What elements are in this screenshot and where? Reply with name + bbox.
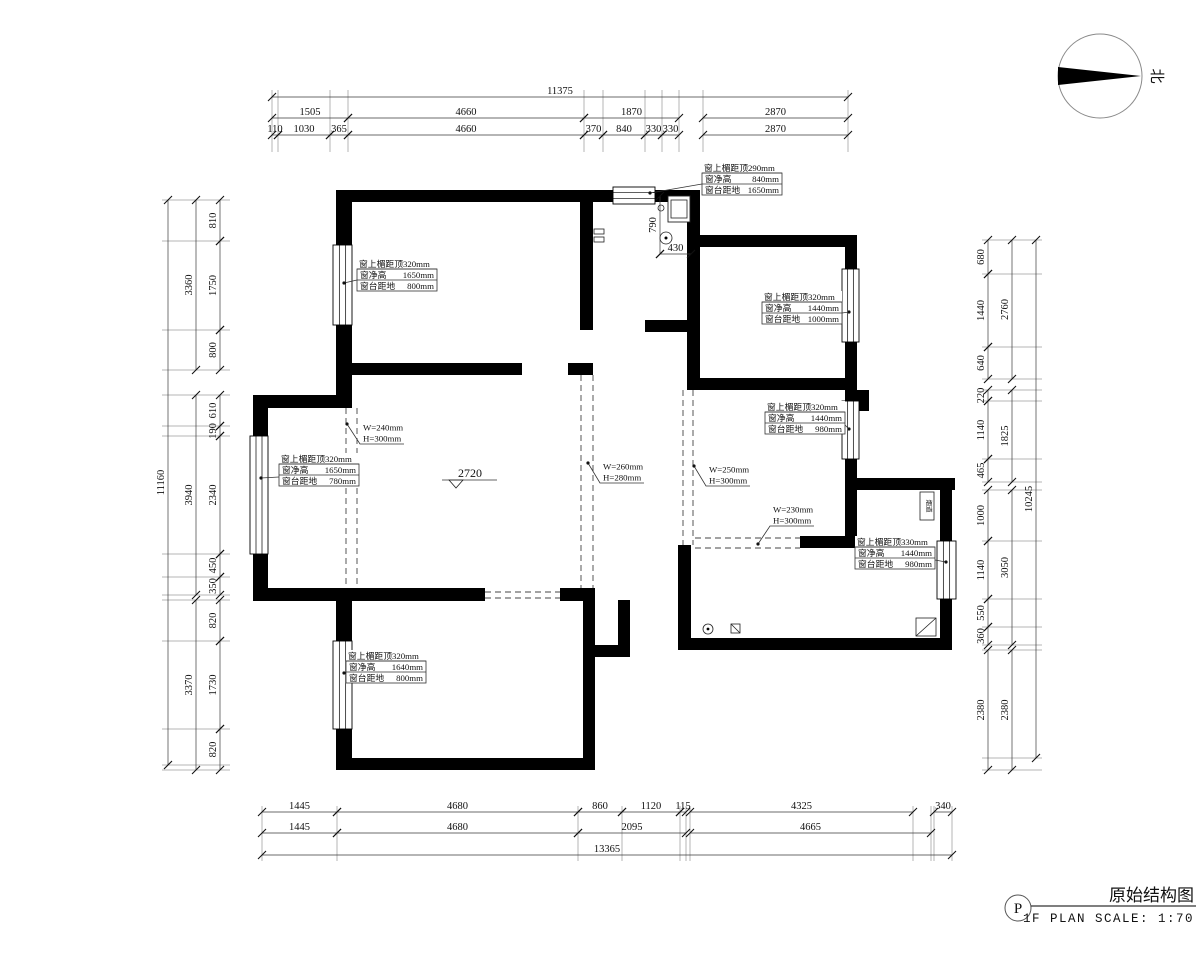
tag-line2-label: 窗净高 (765, 302, 792, 313)
tag-line2-label: 窗净高 (705, 173, 732, 184)
tag-line2-value: 1640mm (392, 662, 423, 672)
tag-line1: 窗上楣距顶320mm (764, 291, 835, 302)
dim-label: 2340 (208, 485, 219, 506)
tag-line3-label: 窗台距地 (705, 184, 740, 195)
dim-label: 190 (208, 423, 219, 439)
tag-leader-dot (847, 427, 850, 430)
dim-label: 4680 (447, 822, 468, 833)
dim-label: 10245 (1024, 486, 1035, 512)
tag-line2-value: 1650mm (325, 465, 356, 475)
dim-label: 2095 (622, 822, 643, 833)
dim-label: 430 (668, 243, 684, 254)
dim-label: 1440 (976, 300, 987, 321)
tag-line2-value: 1650mm (403, 270, 434, 280)
tag-line2-label: 窗净高 (349, 661, 376, 672)
beam-height: H=300mm (709, 476, 747, 486)
dim-label: 4660 (456, 107, 477, 118)
dim-label: 350 (208, 578, 219, 594)
dim-label: 820 (208, 742, 219, 758)
flue-label: 烟道 (925, 500, 934, 514)
dim-label: 4325 (791, 801, 812, 812)
tag-line1: 窗上楣距顶330mm (857, 536, 928, 547)
tag-line2-label: 窗净高 (858, 547, 885, 558)
dim-label: 4660 (456, 124, 477, 135)
tag-leader-dot (944, 560, 947, 563)
dim-label: 1120 (641, 801, 662, 812)
tag-line3-value: 1000mm (808, 314, 839, 324)
tag-line2-label: 窗净高 (282, 464, 309, 475)
dim-label: 610 (208, 403, 219, 419)
tag-line3-value: 780mm (329, 476, 356, 486)
window-tag: 窗上楣距顶290mm窗净高840mm窗台距地1650mm (648, 162, 782, 195)
dim-label: 360 (976, 628, 987, 644)
dim-label: 115 (675, 801, 690, 812)
dim-label: 365 (331, 124, 347, 135)
tag-line1: 窗上楣距顶320mm (359, 258, 430, 269)
tag-line1: 窗上楣距顶320mm (281, 453, 352, 464)
north-label: 北 (1148, 68, 1165, 83)
beam-tag: W=260mmH=280mm (586, 461, 644, 483)
dim-label: 680 (976, 249, 987, 265)
tag-line2-value: 840mm (752, 174, 779, 184)
tag-line3-value: 980mm (815, 424, 842, 434)
dim-label: 800 (208, 342, 219, 358)
tag-line3-value: 800mm (407, 281, 434, 291)
dim-label: 820 (208, 613, 219, 629)
tag-line3-label: 窗台距地 (858, 558, 893, 569)
ceiling-height-mark: 2720 (442, 466, 497, 488)
tag-line1: 窗上楣距顶320mm (348, 650, 419, 661)
dim-label: 370 (586, 124, 602, 135)
dim-label: 13365 (594, 844, 620, 855)
beam-tag: W=240mmH=300mm (345, 422, 404, 444)
tag-leader-dot (847, 310, 850, 313)
plan-scale-label: 1F PLAN SCALE: 1:70 (1023, 912, 1194, 926)
beam-leader-dot (586, 461, 589, 464)
north-arrow: 北 (1058, 34, 1165, 118)
tag-leader-dot (648, 191, 651, 194)
dim-label: 465 (976, 463, 987, 479)
faucet (658, 205, 664, 211)
dim-label: 3370 (184, 675, 195, 696)
dim-label: 1445 (289, 801, 310, 812)
beam-leader-dot (756, 542, 759, 545)
tag-line3-label: 窗台距地 (768, 423, 803, 434)
dim-label: 330 (646, 124, 662, 135)
tag-line2-label: 窗净高 (768, 412, 795, 423)
beam-leader-dot (692, 464, 695, 467)
dim-label: 11375 (547, 86, 573, 97)
tag-line3-value: 1650mm (748, 185, 779, 195)
dim-label: 1505 (300, 107, 321, 118)
dim-label: 340 (935, 801, 951, 812)
dim-label: 3050 (1000, 557, 1011, 578)
dim-label: 2380 (1000, 700, 1011, 721)
dim-label: 4680 (447, 801, 468, 812)
tag-line1: 窗上楣距顶320mm (767, 401, 838, 412)
tag-line3-label: 窗台距地 (765, 313, 800, 324)
beam-height: H=300mm (773, 516, 811, 526)
dim-label: 840 (616, 124, 632, 135)
dim-label: 3360 (184, 275, 195, 296)
dim-label: 2870 (765, 124, 786, 135)
beam-width: W=260mm (603, 462, 643, 472)
floor-plan-page: 烟道 2720 北 P 原始结构图 1F PLAN SCALE: 1:70 11… (0, 0, 1200, 960)
riser (594, 237, 604, 242)
tag-line3-label: 窗台距地 (360, 280, 395, 291)
dim-label: 1750 (208, 275, 219, 296)
dim-label: 790 (648, 217, 659, 233)
dim-label: 1140 (976, 560, 987, 581)
ceiling-height-value: 2720 (458, 466, 482, 480)
tag-line2-value: 1440mm (808, 303, 839, 313)
dim-label: 1870 (621, 107, 642, 118)
beam-width: W=240mm (363, 423, 403, 433)
window-tag: 窗上楣距顶320mm窗净高1650mm窗台距地780mm (259, 453, 359, 486)
floor-drain-dot (707, 628, 710, 631)
dim-label: 220 (976, 388, 987, 404)
plan-badge-letter: P (1014, 901, 1022, 917)
dim-label: 3940 (184, 485, 195, 506)
tag-line3-label: 窗台距地 (282, 475, 317, 486)
window-tag: 窗上楣距顶330mm窗净高1440mm窗台距地980mm (855, 536, 948, 569)
beam-tags: W=240mmH=300mmW=260mmH=280mmW=250mmH=300… (345, 422, 814, 545)
window-tag: 窗上楣距顶320mm窗净高1640mm窗台距地800mm (342, 650, 426, 683)
dim-label: 1730 (208, 675, 219, 696)
title-block: P 原始结构图 1F PLAN SCALE: 1:70 (1005, 886, 1196, 926)
toilet-drain-dot (665, 237, 668, 240)
north-needle (1058, 67, 1141, 85)
beam-width: W=230mm (773, 505, 813, 515)
dim-label: 860 (592, 801, 608, 812)
drawing-title: 原始结构图 (1109, 886, 1194, 905)
dim-label: 640 (976, 355, 987, 371)
riser (594, 229, 604, 234)
dim-label: 1140 (976, 420, 987, 441)
tag-line2-value: 1440mm (811, 413, 842, 423)
beam-height: H=280mm (603, 473, 641, 483)
dim-label: 330 (663, 124, 679, 135)
tag-leader-dot (259, 476, 262, 479)
tag-leader-dot (342, 281, 345, 284)
tag-leader-dot (342, 671, 345, 674)
tag-line3-value: 980mm (905, 559, 932, 569)
beam-leader-dot (345, 422, 348, 425)
dim-label: 4665 (800, 822, 821, 833)
tag-line2-label: 窗净高 (360, 269, 387, 280)
window-tag: 窗上楣距顶320mm窗净高1440mm窗台距地1000mm (762, 291, 851, 324)
dim-label: 1445 (289, 822, 310, 833)
dim-label: 11160 (156, 470, 167, 495)
tag-line1: 窗上楣距顶290mm (704, 162, 775, 173)
dashed-openings (346, 375, 800, 598)
dim-label: 1000 (976, 505, 987, 526)
dim-label: 2870 (765, 107, 786, 118)
beam-height: H=300mm (363, 434, 401, 444)
dim-label: 2380 (976, 700, 987, 721)
dim-label: 550 (976, 605, 987, 621)
tag-line3-label: 窗台距地 (349, 672, 384, 683)
dim-label: 810 (208, 213, 219, 229)
dim-label: 1825 (1000, 426, 1011, 447)
window-tag: 窗上楣距顶320mm窗净高1440mm窗台距地980mm (765, 401, 851, 434)
tag-line2-value: 1440mm (901, 548, 932, 558)
dim-label: 450 (208, 558, 219, 574)
beam-tag: W=250mmH=300mm (692, 464, 750, 486)
dim-label: 1030 (294, 124, 315, 135)
window-tag: 窗上楣距顶320mm窗净高1650mm窗台距地800mm (342, 258, 437, 291)
tag-line3-value: 800mm (396, 673, 423, 683)
beam-width: W=250mm (709, 465, 749, 475)
dim-label: 2760 (1000, 299, 1011, 320)
floor-plan-drawing: 烟道 2720 北 P 原始结构图 1F PLAN SCALE: 1:70 11… (0, 0, 1200, 960)
